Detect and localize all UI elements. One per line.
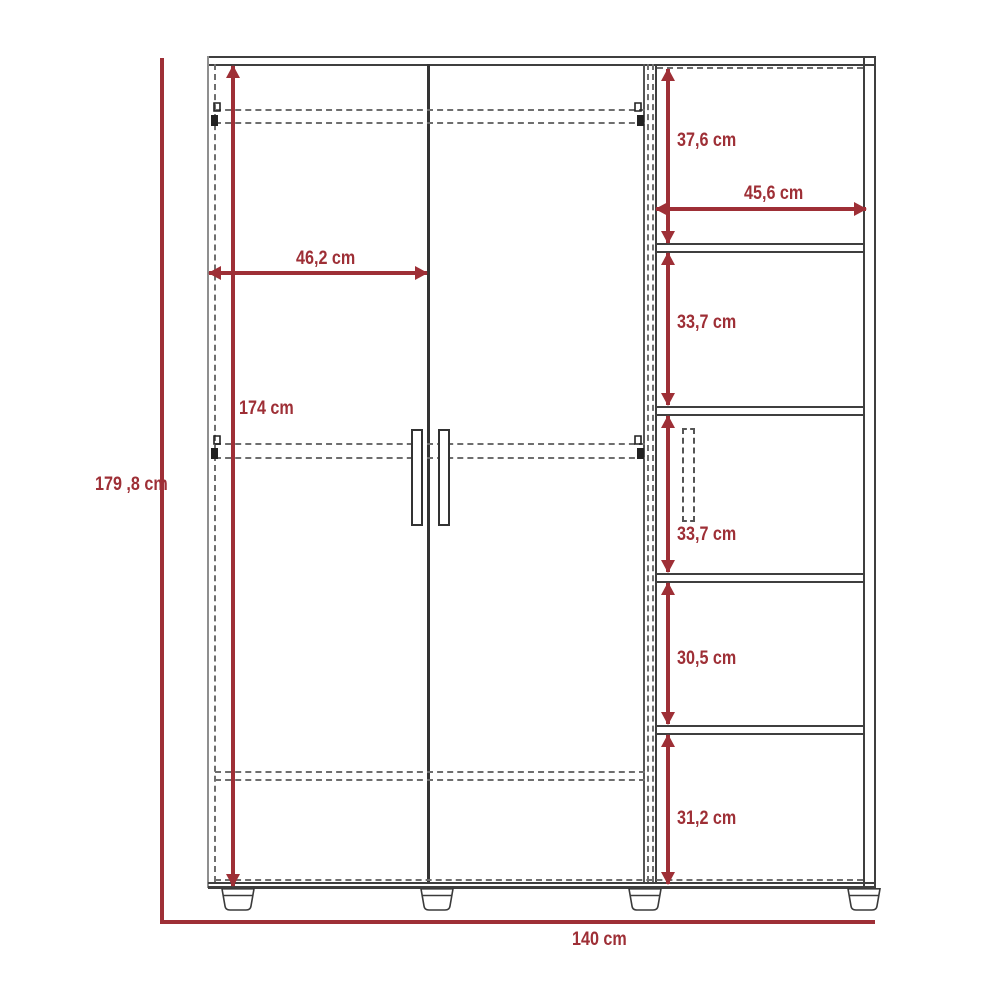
cabinet-bottom-edge-outer [208, 886, 876, 889]
overall-width-dimension-line [160, 920, 875, 924]
overall-width-label: 140 cm [572, 930, 627, 949]
shelf-section-arrow-1 [666, 69, 670, 243]
shelf-section-arrow-3 [666, 416, 670, 572]
shelf-4-top-line [657, 725, 863, 727]
shelf-2-bottom-line [657, 414, 863, 416]
top-hinge-dashed-line-a [215, 109, 645, 111]
shelf-section-label-5: 31,2 cm [677, 809, 736, 828]
cabinet-foot [628, 888, 662, 911]
shelf-section-label-4: 30,5 cm [677, 649, 736, 668]
shelf-3-top-line [657, 573, 863, 575]
shelf-4-bottom-line [657, 733, 863, 735]
middle-hinge-dashed-line-b [215, 457, 645, 459]
right-door-handle [438, 429, 450, 526]
shelf-section-arrow-5 [666, 735, 670, 884]
door-height-label: 174 cm [239, 399, 294, 418]
door-width-label: 46,2 cm [296, 249, 355, 268]
hinge-icon [632, 435, 646, 461]
door-split-line [427, 64, 430, 882]
hinge-icon [209, 435, 223, 461]
shelf-width-arrow [656, 207, 866, 211]
door-width-arrow [209, 271, 427, 275]
compartment-top-dashed-line [657, 67, 863, 69]
cabinet-right-edge-outer [874, 56, 876, 888]
shelf-section-label-3: 33,7 cm [677, 525, 736, 544]
right-door-right-edge [643, 64, 645, 882]
hinge-icon [632, 102, 646, 128]
cabinet-top-edge-outer [208, 56, 876, 58]
shelf-3-bottom-line [657, 581, 863, 583]
cabinet-right-edge-inner [863, 56, 865, 888]
middle-hinge-dashed-line-a [215, 443, 645, 445]
cabinet-foot [847, 888, 881, 911]
phantom-handle-outline [682, 428, 695, 522]
bottom-dashed-line-a [215, 771, 645, 773]
shelf-2-top-line [657, 406, 863, 408]
shelf-width-label: 45,6 cm [744, 184, 803, 203]
cabinet-left-edge [207, 56, 209, 888]
hinge-icon [209, 102, 223, 128]
door-height-arrow [231, 66, 235, 886]
base-dashed-line [215, 879, 863, 881]
shelf-section-arrow-2 [666, 253, 670, 405]
wardrobe-dimension-diagram: 179 ,8 cm 140 cm 46,2 cm 174 cm 45,6 cm … [0, 0, 1000, 1000]
top-hinge-dashed-line-b [215, 122, 645, 124]
shelf-compartment-wall [655, 64, 657, 882]
cabinet-top-edge-inner [208, 64, 876, 66]
right-door-hinge-dashed-line-a [647, 64, 649, 882]
shelf-section-label-1: 37,6 cm [677, 131, 736, 150]
right-door-hinge-dashed-line-b [652, 64, 654, 882]
shelf-1-bottom-line [657, 251, 863, 253]
cabinet-bottom-edge-inner [208, 882, 876, 884]
cabinet-foot [221, 888, 255, 911]
shelf-section-arrow-4 [666, 583, 670, 724]
shelf-section-label-2: 33,7 cm [677, 313, 736, 332]
left-door-hinge-dashed-line [214, 64, 216, 882]
bottom-dashed-line-b [215, 779, 645, 781]
cabinet-foot [420, 888, 454, 911]
overall-height-label: 179 ,8 cm [95, 475, 168, 494]
left-door-handle [411, 429, 423, 526]
shelf-1-top-line [657, 243, 863, 245]
